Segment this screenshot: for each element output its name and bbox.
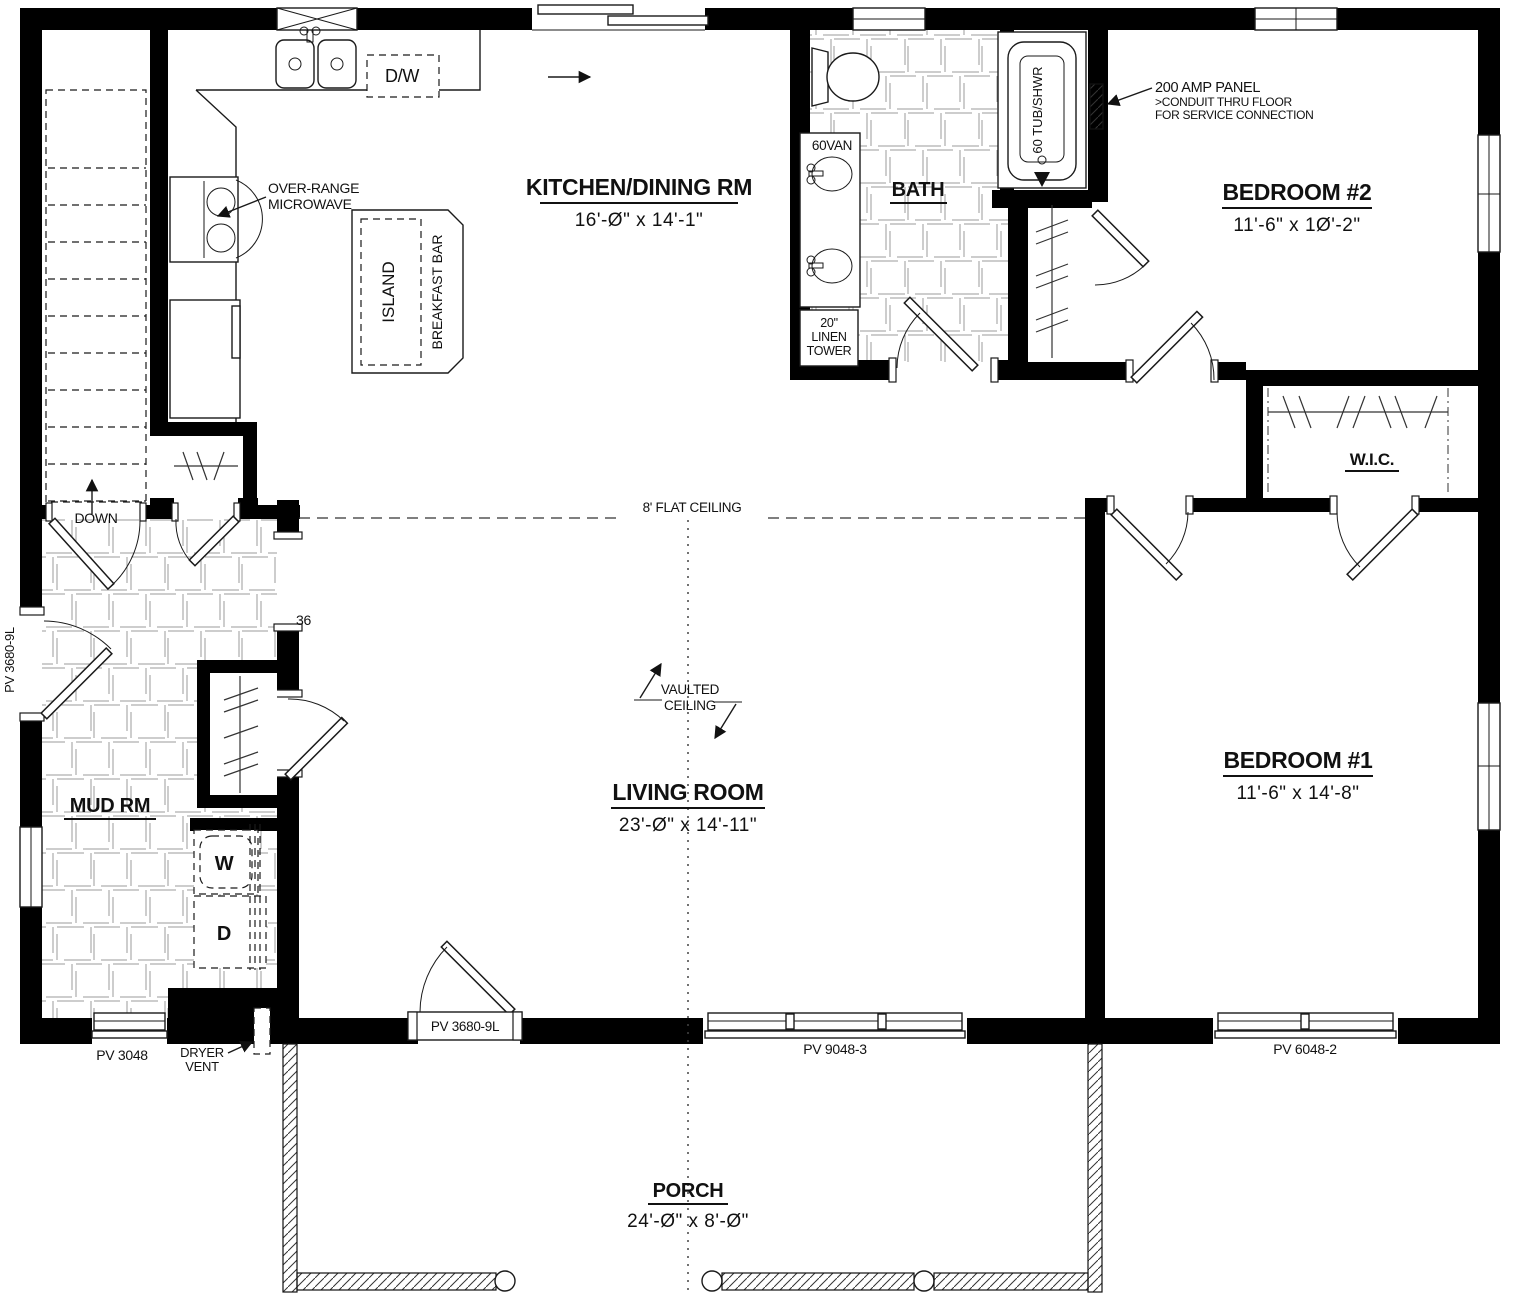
linen-label-2: LINEN bbox=[811, 330, 847, 344]
vaulted-label-2: CEILING bbox=[664, 698, 716, 713]
linen-label-3: TOWER bbox=[807, 344, 852, 358]
bath-window bbox=[853, 8, 925, 30]
kitchen-dim: 16'-Ø" x 14'-1" bbox=[575, 210, 704, 231]
bedroom1-door bbox=[1107, 496, 1193, 580]
panel-label-3: FOR SERVICE CONNECTION bbox=[1155, 108, 1314, 122]
bedroom1-window-label: PV 6048-2 bbox=[1273, 1041, 1337, 1057]
dryer-label: D bbox=[217, 923, 231, 945]
porch-rail bbox=[722, 1273, 914, 1290]
flat-ceiling-label: 8' FLAT CEILING bbox=[643, 500, 742, 515]
coat-closet-rod bbox=[210, 673, 277, 795]
pantry-rod bbox=[174, 452, 238, 480]
opening-width-label: 36 bbox=[296, 612, 311, 628]
microwave-label-1: OVER-RANGE bbox=[268, 180, 359, 196]
porch-title: PORCH bbox=[653, 1180, 724, 1202]
porch-post bbox=[702, 1271, 722, 1291]
porch-dim: 24'-Ø" x 8'-Ø" bbox=[627, 1211, 749, 1232]
microwave-label-2: MICROWAVE bbox=[268, 196, 352, 212]
down-label: DOWN bbox=[74, 510, 117, 526]
porch-right-post bbox=[1088, 1044, 1102, 1292]
kitchen-sink bbox=[276, 27, 356, 88]
panel-label-1: 200 AMP PANEL bbox=[1155, 80, 1260, 96]
linen-label-1: 20" bbox=[820, 316, 837, 330]
bedroom2-door bbox=[1126, 311, 1218, 382]
living-dim: 23'-Ø" x 14'-11" bbox=[619, 815, 757, 836]
bedroom2-closet-rod bbox=[1036, 205, 1068, 358]
panel-label-2: >CONDUIT THRU FLOOR bbox=[1155, 95, 1293, 109]
porch-rail bbox=[934, 1273, 1088, 1290]
stairs bbox=[46, 90, 146, 514]
bedroom2-title: BEDROOM #2 bbox=[1222, 179, 1371, 205]
floor-plan-drawing: KITCHEN/DINING RM 16'-Ø" x 14'-1" BATH B… bbox=[0, 0, 1514, 1304]
front-door-label: PV 3680-9L bbox=[431, 1019, 500, 1034]
panel-leader bbox=[1108, 88, 1152, 104]
wic-rod bbox=[1268, 388, 1448, 494]
breakfast-bar-label: BREAKFAST BAR bbox=[429, 235, 445, 350]
range bbox=[170, 177, 262, 262]
bedroom2-top-window bbox=[1255, 8, 1337, 30]
mudroom-title: MUD RM bbox=[70, 795, 150, 817]
dryer-vent-label-1: DRYER bbox=[180, 1045, 224, 1060]
bath-title: BATH bbox=[892, 179, 945, 201]
floor-plan-page: KITCHEN/DINING RM 16'-Ø" x 14'-1" BATH B… bbox=[0, 0, 1514, 1304]
ceiling-annotations bbox=[299, 518, 1085, 1290]
island-label: ISLAND bbox=[379, 261, 398, 322]
bedroom2-closet-door bbox=[1092, 210, 1149, 285]
bedroom1-right-window bbox=[1478, 703, 1500, 830]
bedroom1-title: BEDROOM #1 bbox=[1223, 747, 1373, 773]
wic-title: W.I.C. bbox=[1350, 450, 1394, 469]
kitchen-island bbox=[352, 210, 463, 373]
bedroom1-dim: 11'-6" x 14'-8" bbox=[1237, 783, 1360, 804]
living-title: LIVING ROOM bbox=[612, 779, 763, 805]
refrigerator bbox=[170, 300, 240, 418]
porch-post bbox=[914, 1271, 934, 1291]
dryer-vent-box bbox=[254, 1008, 270, 1054]
side-door-label: PV 3680-9L bbox=[2, 627, 17, 693]
living-room-window bbox=[703, 1013, 967, 1044]
porch-left-post bbox=[283, 1044, 297, 1292]
mudroom-left-window bbox=[20, 827, 42, 907]
bedroom2-right-window bbox=[1478, 135, 1500, 252]
sliding-patio-door bbox=[532, 5, 708, 77]
porch-structure bbox=[283, 1044, 1102, 1292]
coat-closet-door bbox=[274, 690, 347, 780]
vaulted-label-1: VAULTED bbox=[661, 682, 720, 697]
dryer-vent-label-2: VENT bbox=[185, 1059, 219, 1074]
wic-door bbox=[1330, 496, 1419, 580]
vanity-label: 60VAN bbox=[812, 138, 852, 153]
bedroom2-dim: 11'-6" x 1Ø'-2" bbox=[1233, 215, 1360, 236]
mud-window-label: PV 3048 bbox=[96, 1047, 148, 1063]
kitchen-casework bbox=[170, 27, 480, 422]
kitchen-title: KITCHEN/DINING RM bbox=[526, 174, 752, 200]
vanity bbox=[800, 133, 860, 307]
mudroom-bottom-window bbox=[92, 1013, 167, 1044]
living-window-label: PV 9048-3 bbox=[803, 1041, 867, 1057]
dishwasher-label: D/W bbox=[385, 66, 419, 86]
bedroom1-bottom-window bbox=[1213, 1013, 1398, 1044]
electrical-panel bbox=[1090, 84, 1103, 129]
tub-label: 60 TUB/SHWR bbox=[1030, 66, 1045, 153]
washer-label: W bbox=[215, 853, 234, 875]
porch-rail bbox=[297, 1273, 496, 1290]
porch-post bbox=[495, 1271, 515, 1291]
